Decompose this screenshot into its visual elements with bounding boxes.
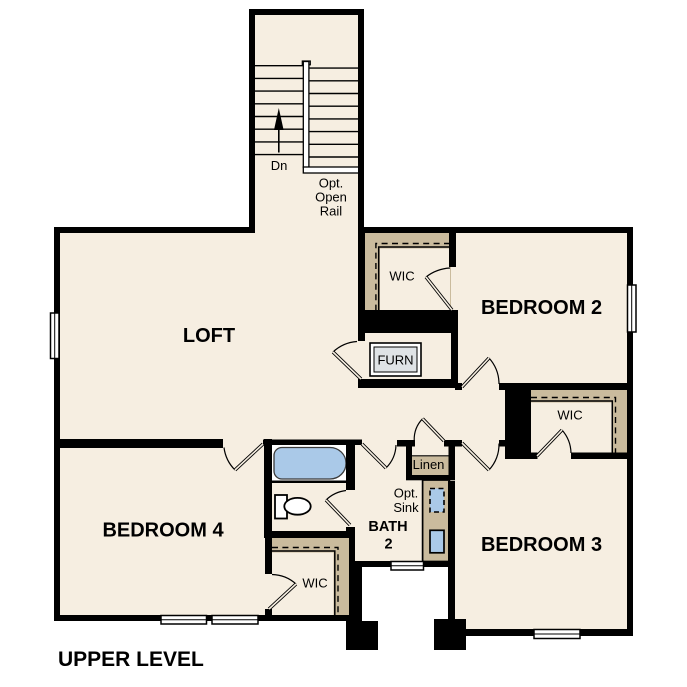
svg-text:Sink: Sink bbox=[393, 500, 419, 515]
svg-text:Rail: Rail bbox=[320, 204, 343, 219]
svg-text:WIC: WIC bbox=[389, 269, 414, 284]
svg-text:BEDROOM 4: BEDROOM 4 bbox=[102, 520, 224, 542]
svg-text:Opt.: Opt. bbox=[394, 486, 419, 501]
svg-text:UPPER LEVEL: UPPER LEVEL bbox=[58, 648, 204, 671]
svg-text:Linen: Linen bbox=[413, 457, 445, 472]
svg-text:Opt.: Opt. bbox=[319, 176, 344, 191]
svg-text:WIC: WIC bbox=[302, 576, 327, 591]
svg-text:BATH: BATH bbox=[368, 519, 407, 535]
svg-text:2: 2 bbox=[384, 537, 392, 553]
svg-text:LOFT: LOFT bbox=[183, 325, 235, 347]
svg-text:BEDROOM 2: BEDROOM 2 bbox=[481, 297, 602, 319]
svg-text:BEDROOM 3: BEDROOM 3 bbox=[481, 534, 602, 556]
svg-text:Open: Open bbox=[315, 190, 347, 205]
svg-text:FURN: FURN bbox=[377, 353, 413, 368]
svg-text:WIC: WIC bbox=[557, 408, 582, 423]
svg-text:Dn: Dn bbox=[271, 158, 288, 173]
